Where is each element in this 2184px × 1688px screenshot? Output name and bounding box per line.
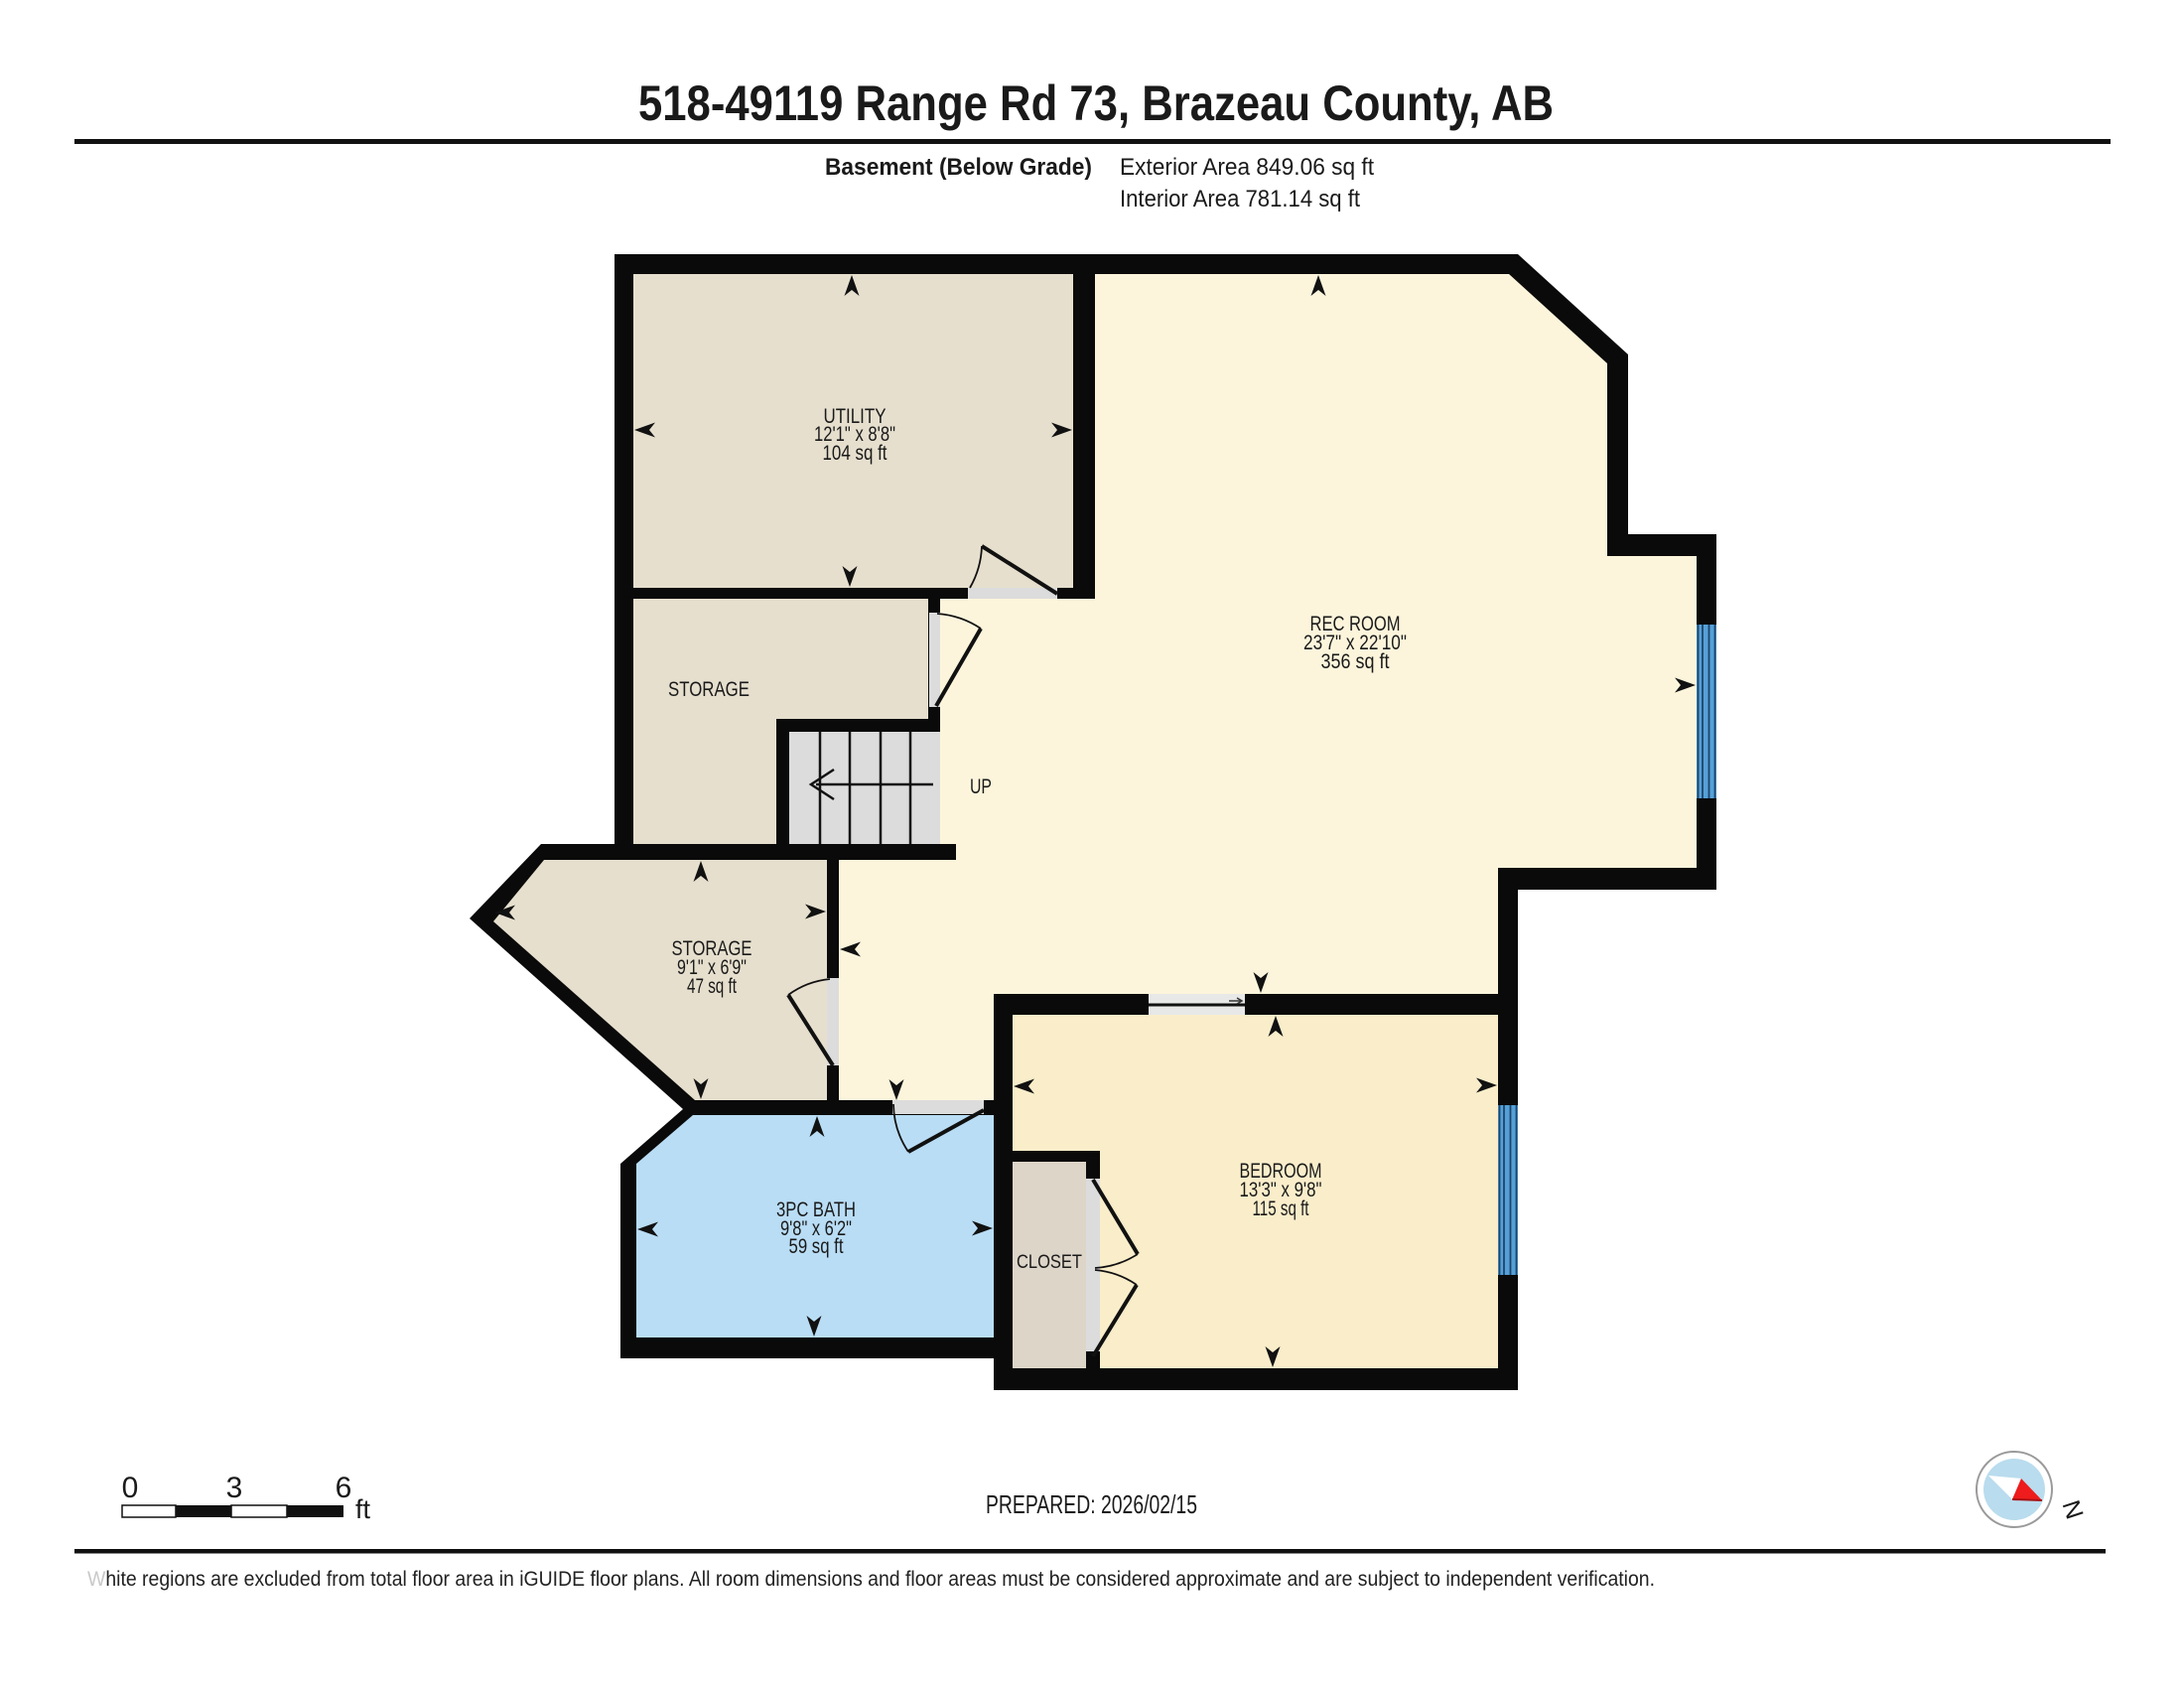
svg-text:Basement (Below Grade): Basement (Below Grade) [825,154,1092,181]
svg-text:518-49119 Range Rd 73, Brazeau: 518-49119 Range Rd 73, Brazeau County, A… [638,75,1554,131]
svg-text:Exterior Area 849.06 sq ft: Exterior Area 849.06 sq ft [1120,154,1374,181]
svg-text:Interior Area 781.14 sq ft: Interior Area 781.14 sq ft [1120,186,1360,212]
svg-text:115 sq ft: 115 sq ft [1253,1197,1309,1220]
svg-text:3: 3 [226,1472,243,1504]
svg-text:ft: ft [355,1494,371,1524]
svg-text:STORAGE: STORAGE [668,678,750,701]
svg-text:PREPARED: 2026/02/15: PREPARED: 2026/02/15 [986,1489,1197,1519]
svg-text:59 sq ft: 59 sq ft [789,1235,844,1258]
svg-text:White regions are excluded fro: White regions are excluded from total fl… [87,1567,1655,1591]
svg-text:0: 0 [122,1472,139,1504]
svg-text:6: 6 [336,1472,352,1504]
svg-text:356 sq ft: 356 sq ft [1321,650,1390,673]
svg-text:47 sq ft: 47 sq ft [687,975,737,998]
svg-text:104 sq ft: 104 sq ft [823,442,887,465]
svg-text:CLOSET: CLOSET [1017,1252,1082,1273]
svg-text:UP: UP [970,775,992,798]
